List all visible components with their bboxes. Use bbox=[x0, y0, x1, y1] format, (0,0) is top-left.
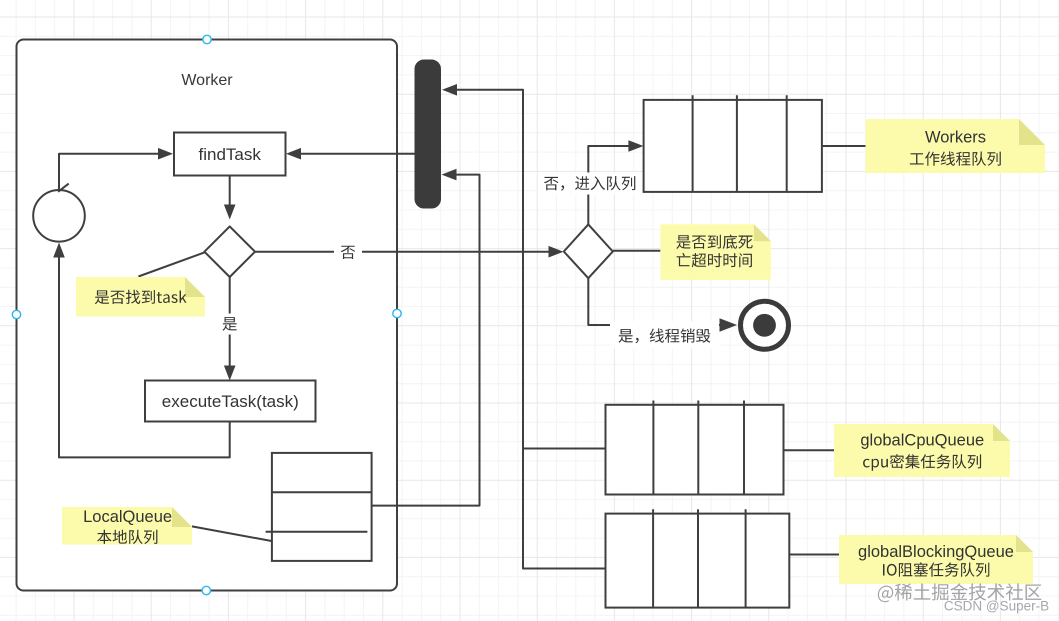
svg-text:globalCpuQueue: globalCpuQueue bbox=[860, 432, 984, 450]
svg-text:Workers: Workers bbox=[925, 129, 986, 147]
svg-text:executeTask(task): executeTask(task) bbox=[162, 392, 299, 411]
svg-text:LocalQueue: LocalQueue bbox=[83, 508, 172, 526]
svg-text:globalBlockingQueue: globalBlockingQueue bbox=[858, 543, 1014, 561]
svg-text:CSDN @Super-B: CSDN @Super-B bbox=[944, 599, 1049, 614]
svg-text:Worker: Worker bbox=[181, 72, 233, 89]
svg-text:findTask: findTask bbox=[199, 145, 262, 164]
